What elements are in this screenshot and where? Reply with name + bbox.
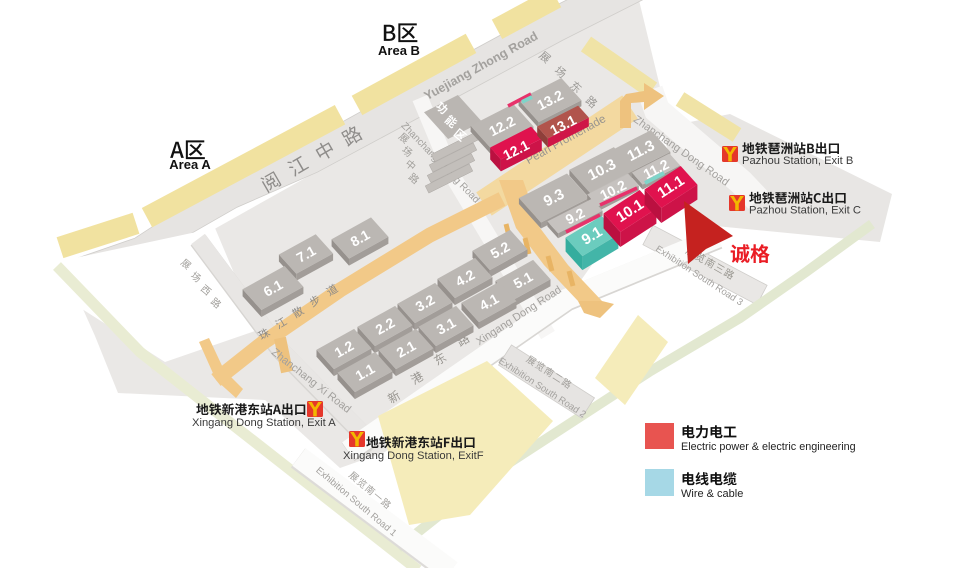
svg-text:Xingang Dong Station, Exit A: Xingang Dong Station, Exit A: [192, 417, 336, 429]
svg-text:Wire & cable: Wire & cable: [681, 488, 743, 500]
svg-text:Area B: Area B: [378, 43, 420, 58]
svg-text:Xingang Dong Station, ExitF: Xingang Dong Station, ExitF: [343, 450, 484, 462]
svg-text:Area A: Area A: [169, 157, 211, 172]
svg-text:Pazhou Station, Exit B: Pazhou Station, Exit B: [742, 155, 853, 167]
svg-text:Pazhou Station, Exit C: Pazhou Station, Exit C: [749, 205, 861, 217]
svg-text:Electric power & electric engi: Electric power & electric engineering: [681, 441, 856, 453]
